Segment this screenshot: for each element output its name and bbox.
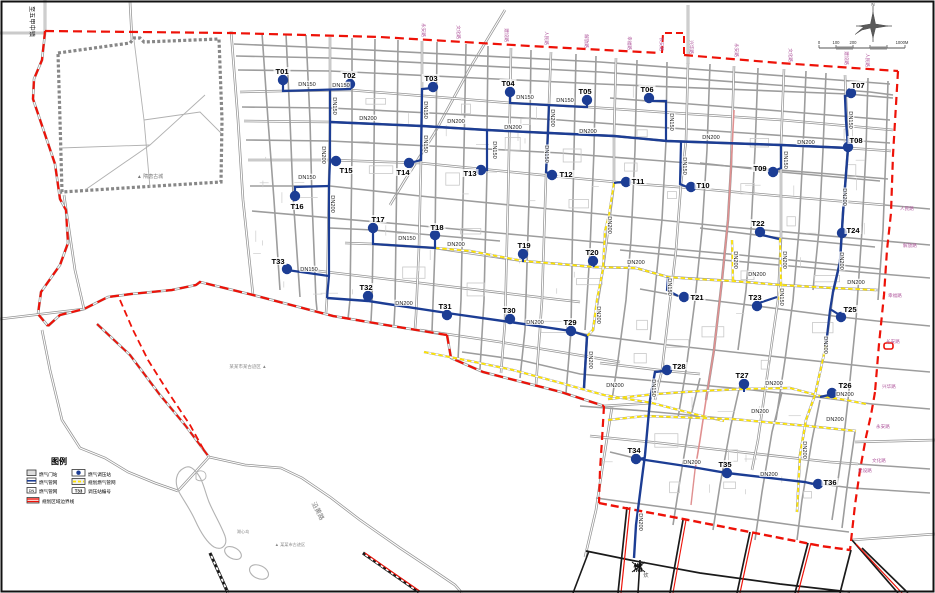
svg-text:DN200: DN200	[447, 119, 464, 125]
svg-text:DN200: DN200	[606, 383, 623, 389]
svg-text:T15: T15	[339, 166, 353, 175]
svg-text:长安路: 长安路	[658, 37, 665, 51]
svg-text:规划区域边界线: 规划区域边界线	[42, 498, 75, 505]
svg-text:建设路: 建设路	[503, 28, 510, 42]
svg-text:T30: T30	[502, 306, 515, 315]
svg-text:DN200: DN200	[826, 417, 843, 423]
svg-text:DN200: DN200	[587, 351, 593, 368]
svg-text:T08: T08	[849, 136, 862, 145]
svg-text:永安路: 永安路	[420, 23, 427, 37]
svg-text:文化路: 文化路	[787, 48, 794, 62]
svg-text:DN200: DN200	[549, 109, 555, 126]
svg-text:T36: T36	[823, 478, 836, 487]
svg-text:DN150: DN150	[778, 288, 784, 305]
svg-text:DN200: DN200	[504, 125, 521, 131]
svg-text:兴华路: 兴华路	[882, 383, 896, 390]
svg-text:DN200: DN200	[847, 280, 864, 286]
svg-text:DN200: DN200	[841, 188, 847, 205]
svg-text:DN200: DN200	[683, 460, 700, 466]
svg-text:永安路: 永安路	[733, 43, 740, 57]
svg-text:DN150: DN150	[650, 379, 656, 396]
svg-text:文化路: 文化路	[455, 25, 462, 39]
svg-text:DN150: DN150	[298, 82, 315, 88]
svg-text:T01: T01	[275, 67, 289, 76]
svg-text:湖心岛: 湖心岛	[237, 528, 250, 535]
svg-text:DN200: DN200	[732, 251, 738, 268]
svg-text:解放路: 解放路	[583, 34, 590, 48]
svg-text:T14: T14	[396, 168, 410, 177]
svg-text:燃气门站: 燃气门站	[39, 471, 58, 478]
svg-text:T31: T31	[438, 302, 452, 311]
svg-text:DN150: DN150	[491, 141, 497, 158]
svg-text:T04: T04	[501, 79, 515, 88]
svg-text:T20: T20	[585, 248, 598, 257]
svg-text:人民路: 人民路	[543, 31, 550, 45]
svg-text:T35: T35	[718, 460, 732, 469]
svg-text:T34: T34	[627, 446, 641, 455]
svg-text:T23: T23	[748, 293, 761, 302]
svg-text:建设路: 建设路	[843, 51, 850, 65]
svg-text:兴华路: 兴华路	[688, 40, 695, 54]
svg-text:至五甲中镇: 至五甲中镇	[28, 6, 36, 37]
svg-text:幸福路: 幸福路	[626, 36, 633, 50]
svg-text:DN150: DN150	[398, 236, 415, 242]
svg-text:T21: T21	[690, 293, 704, 302]
svg-text:DN150: DN150	[331, 97, 337, 114]
svg-text:DN200: DN200	[606, 216, 612, 233]
svg-text:燃气管网: 燃气管网	[39, 479, 58, 486]
svg-text:DN200: DN200	[760, 472, 777, 478]
svg-text:▲ 某某市古迹区: ▲ 某某市古迹区	[275, 541, 305, 548]
svg-text:DN150: DN150	[543, 145, 549, 162]
svg-text:DN150: DN150	[516, 95, 533, 101]
svg-text:T29: T29	[563, 318, 576, 327]
svg-text:DN150: DN150	[300, 267, 317, 273]
svg-text:T25: T25	[843, 305, 857, 314]
svg-text:DN150: DN150	[298, 175, 315, 181]
svg-text:T26: T26	[838, 381, 851, 390]
svg-text:DN200: DN200	[797, 140, 814, 146]
svg-text:规划燃气管网: 规划燃气管网	[88, 479, 116, 486]
svg-text:炊: 炊	[643, 572, 648, 579]
svg-text:DN200: DN200	[836, 392, 853, 398]
svg-text:T05: T05	[578, 87, 592, 96]
svg-text:DN150: DN150	[556, 98, 573, 104]
svg-text:DN200: DN200	[395, 301, 412, 307]
svg-text:DN200: DN200	[320, 146, 326, 163]
svg-text:T22: T22	[751, 219, 764, 228]
svg-text:DN200: DN200	[637, 513, 643, 530]
svg-text:DN200: DN200	[822, 336, 828, 353]
svg-text:DN200: DN200	[765, 381, 782, 387]
svg-text:DN150: DN150	[782, 151, 788, 168]
svg-text:200: 200	[850, 40, 858, 45]
svg-text:DN200: DN200	[801, 441, 807, 458]
svg-text:T19: T19	[517, 241, 530, 250]
svg-text:DN200: DN200	[526, 320, 543, 326]
svg-text:T28: T28	[672, 362, 685, 371]
svg-text:DN200: DN200	[838, 252, 844, 269]
svg-text:DN200: DN200	[748, 272, 765, 278]
svg-text:幸福路: 幸福路	[888, 292, 902, 299]
svg-text:T24: T24	[846, 226, 860, 235]
svg-text:DN150: DN150	[681, 157, 687, 174]
svg-text:DN200: DN200	[627, 260, 644, 266]
svg-text:T11: T11	[632, 177, 645, 186]
svg-text:某某市某古迹区 ▲: 某某市某古迹区 ▲	[229, 363, 266, 370]
svg-text:文化路: 文化路	[872, 457, 886, 464]
svg-text:T33: T33	[271, 257, 284, 266]
svg-text:DN200: DN200	[359, 116, 376, 122]
svg-text:人民路: 人民路	[864, 53, 871, 67]
svg-text:T02: T02	[342, 71, 355, 80]
svg-text:T33: T33	[75, 488, 83, 493]
svg-text:T07: T07	[851, 81, 864, 90]
svg-text:图例: 图例	[51, 456, 67, 466]
svg-text:T16: T16	[290, 202, 303, 211]
svg-text:T13: T13	[463, 169, 476, 178]
svg-text:T09: T09	[753, 164, 766, 173]
svg-text:DN150: DN150	[666, 278, 672, 295]
svg-text:DN150: DN150	[668, 113, 674, 130]
svg-text:DN: DN	[29, 489, 35, 493]
svg-text:T12: T12	[559, 170, 572, 179]
svg-text:T17: T17	[371, 215, 384, 224]
svg-text:DN200: DN200	[579, 129, 596, 135]
svg-text:长安路: 长安路	[886, 338, 900, 345]
svg-text:DN150: DN150	[422, 101, 428, 118]
svg-text:T18: T18	[430, 223, 443, 232]
svg-text:燃气调压站: 燃气调压站	[88, 471, 111, 478]
svg-text:人民路: 人民路	[900, 205, 914, 212]
svg-text:100: 100	[833, 40, 841, 45]
svg-text:▲ 隋唐古城: ▲ 隋唐古城	[137, 173, 163, 180]
svg-text:1000M: 1000M	[896, 40, 909, 45]
svg-text:DN200: DN200	[447, 242, 464, 248]
svg-text:调压站编号: 调压站编号	[88, 488, 111, 495]
svg-text:T10: T10	[696, 181, 709, 190]
svg-text:DN150: DN150	[332, 83, 349, 89]
svg-text:DN200: DN200	[781, 251, 787, 268]
svg-text:N: N	[871, 2, 874, 7]
svg-text:DN200: DN200	[329, 195, 335, 212]
svg-text:永安路: 永安路	[876, 423, 890, 430]
svg-text:DN200: DN200	[595, 306, 601, 323]
svg-text:燃气管网: 燃气管网	[39, 488, 58, 495]
svg-text:建设路: 建设路	[858, 467, 872, 474]
svg-text:解放路: 解放路	[903, 242, 917, 249]
svg-text:DN200: DN200	[702, 135, 719, 141]
svg-text:DN200: DN200	[751, 409, 768, 415]
svg-text:T27: T27	[735, 371, 748, 380]
svg-text:DN150: DN150	[422, 135, 428, 152]
svg-text:T03: T03	[424, 74, 437, 83]
svg-text:T06: T06	[640, 85, 653, 94]
svg-text:T32: T32	[359, 283, 372, 292]
svg-text:DN150: DN150	[847, 111, 853, 128]
